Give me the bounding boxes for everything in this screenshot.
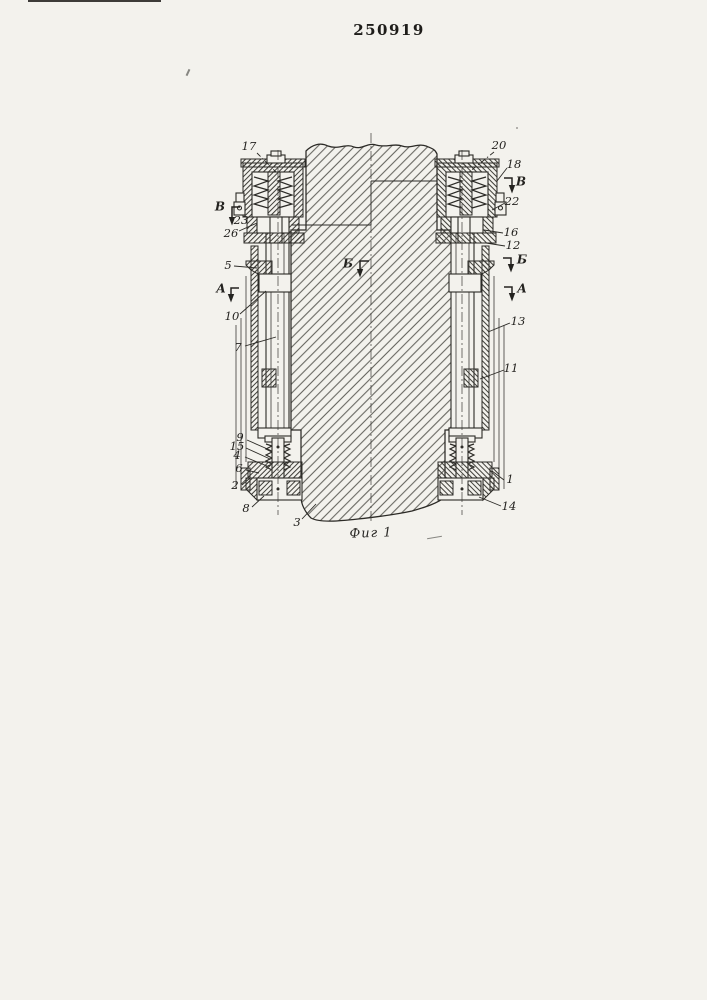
callout-label: 11 [504, 361, 519, 375]
section-marker-elbow [504, 178, 512, 185]
callout-8: 8 [242, 496, 264, 515]
hook-flange [246, 261, 272, 275]
callout-label: 5 [224, 258, 231, 272]
callout-label: 2 [230, 478, 238, 492]
section-marker-elbow [504, 287, 512, 293]
callout-leader-line [479, 497, 501, 506]
callout-label: 4 [232, 448, 240, 462]
callout-label: 14 [502, 499, 517, 513]
side-boss [236, 193, 244, 202]
callout-label: 8 [242, 501, 249, 515]
section-arrow-icon [509, 293, 515, 302]
guide-block [259, 274, 291, 292]
section-letter: А [516, 282, 527, 296]
section-marker-В: В [504, 175, 526, 194]
seal-block [287, 481, 300, 495]
section-marker-elbow [503, 258, 511, 264]
callout-label: 16 [504, 225, 519, 239]
callout-label: 17 [242, 139, 257, 153]
callout-label: 6 [235, 461, 242, 475]
head-plug-tip [271, 151, 281, 156]
seal-block [259, 481, 272, 495]
section-letter: В [515, 175, 526, 189]
collar-wall [289, 217, 299, 233]
section-letter: В [214, 200, 225, 214]
section-marker-А: А [215, 282, 239, 303]
section-letter: Б [516, 253, 527, 267]
section-arrow-icon [228, 294, 234, 303]
callout-14: 14 [479, 497, 516, 513]
section-arrow-icon [508, 264, 514, 273]
clamp-block [262, 369, 276, 387]
callout-label: 3 [293, 515, 300, 529]
foot-flange [248, 462, 302, 478]
callout-label: 26 [223, 226, 239, 240]
callout-label: 22 [504, 194, 520, 208]
section-arrow-icon [509, 185, 515, 194]
section-marker-Б: Б [503, 253, 527, 273]
central-shaft [291, 133, 452, 523]
section-marker-А: А [504, 282, 527, 302]
callout-label: 7 [234, 340, 242, 354]
callout-label: 13 [511, 314, 526, 328]
callout-13: 13 [488, 314, 525, 332]
callout-label: 12 [506, 238, 521, 252]
callout-label: 23 [233, 213, 249, 227]
flange-plate [244, 233, 304, 243]
section-marker-elbow [231, 288, 239, 294]
section-letter: А [215, 282, 226, 296]
callout-label: 20 [491, 138, 507, 152]
callout-label: 1 [506, 472, 513, 486]
piston-rod [266, 217, 289, 439]
callout-label: 10 [225, 309, 240, 323]
patent-figure-1: 17232651079154628320182216121311114ВВААБ… [0, 0, 707, 1000]
section-letter: Б [342, 257, 353, 271]
callout-23: 23 [233, 213, 249, 227]
callout-label: 18 [507, 157, 522, 171]
callout-leader-line [497, 168, 507, 181]
foot-corner [246, 478, 257, 500]
